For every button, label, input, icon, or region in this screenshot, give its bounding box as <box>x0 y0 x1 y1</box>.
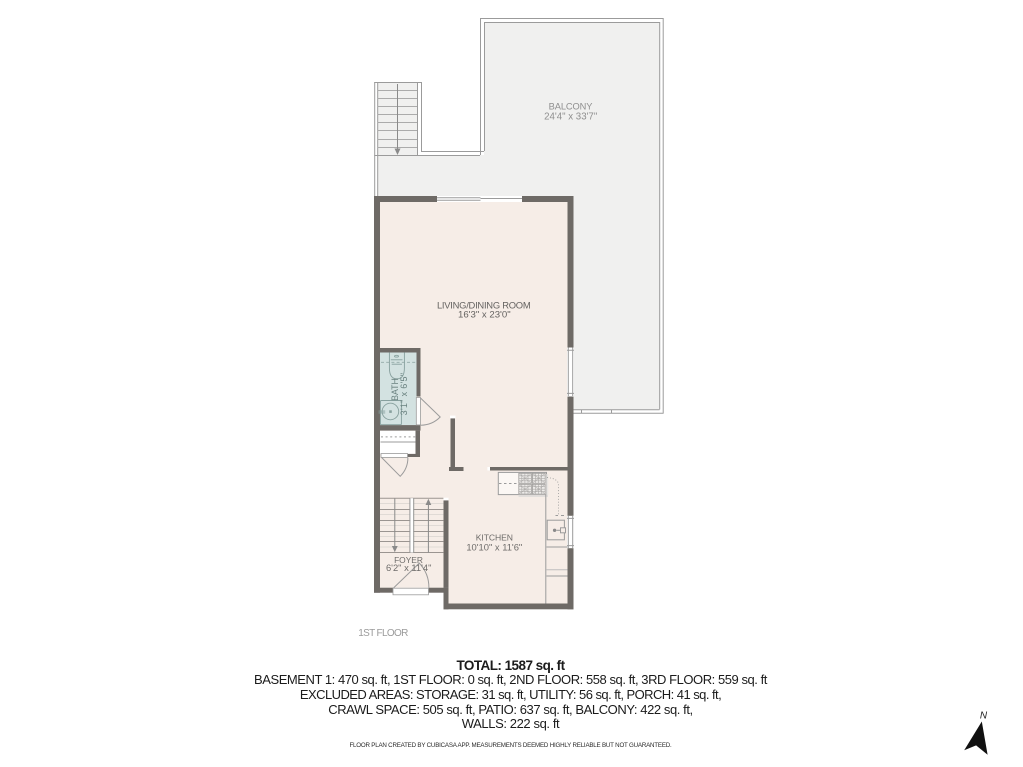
svg-text:10'10" x 11'6": 10'10" x 11'6" <box>466 541 522 552</box>
svg-text:1ST FLOOR: 1ST FLOOR <box>358 628 408 639</box>
svg-text:16'3" x 23'0": 16'3" x 23'0" <box>458 310 511 321</box>
svg-text:BALCONY: BALCONY <box>549 102 593 112</box>
svg-text:6'2" x 11'4": 6'2" x 11'4" <box>386 562 432 573</box>
svg-text:24'4" x 33'7": 24'4" x 33'7" <box>544 111 598 122</box>
svg-text:3'1" x 6'5": 3'1" x 6'5" <box>399 373 409 416</box>
